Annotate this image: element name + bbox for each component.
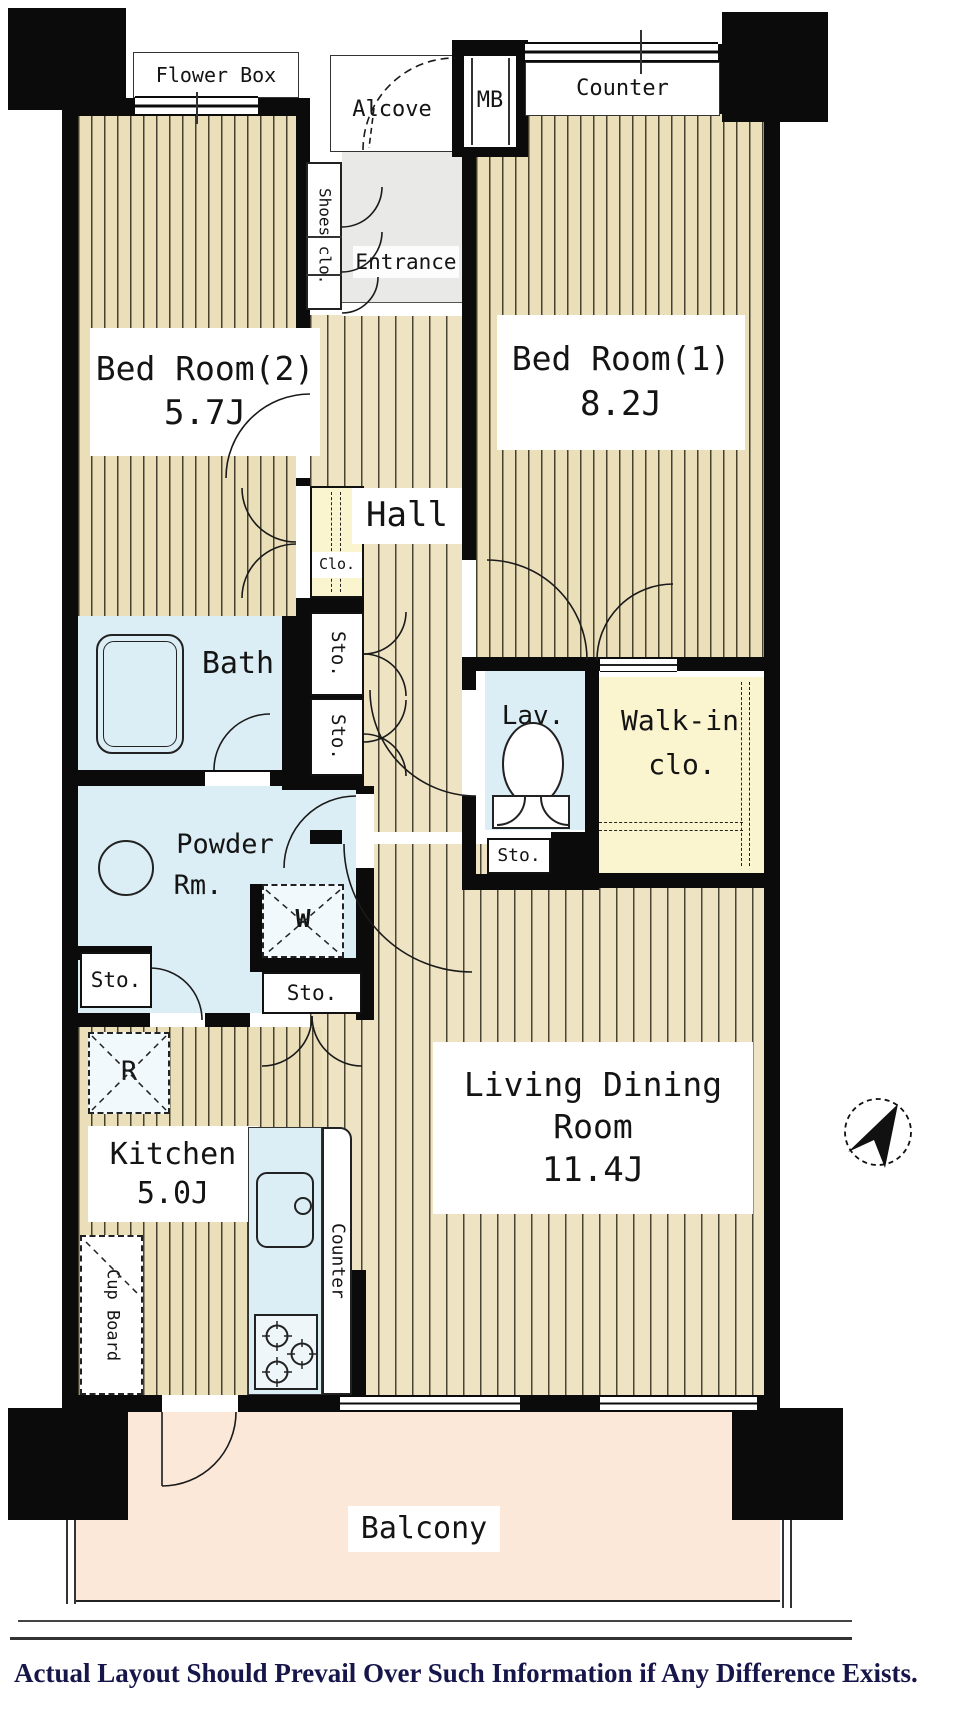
bath-door-opening: [205, 772, 270, 786]
lavatory-door-opening: [462, 690, 476, 796]
kitchen-label: Kitchen 5.0J: [88, 1126, 258, 1222]
counter-top-box: Counter: [525, 62, 720, 116]
wall-walkin-bottom: [599, 873, 780, 888]
railing-line-1: [18, 1620, 852, 1622]
wall-right-outer: [764, 122, 780, 1408]
ldk-window-1: [340, 1395, 520, 1412]
walkin-label-2: clo.: [636, 744, 728, 786]
bath-label: Bath: [196, 644, 280, 684]
balcony-edge-r2: [790, 1520, 792, 1608]
ldk-window-2: [600, 1395, 757, 1412]
entrance-step: [342, 302, 462, 316]
corner-block-top-right: [722, 12, 828, 122]
balcony-door-opening: [162, 1395, 238, 1412]
shoes-tick-2: [306, 274, 342, 276]
sto-lavatory: Sto.: [487, 838, 551, 874]
compass-north-icon: [838, 1088, 926, 1176]
floor-plan: Flower Box Alcove MB Counter Shoes clo. …: [0, 0, 977, 1709]
flower-box: Flower Box: [133, 52, 299, 98]
wall-washer-left: [250, 884, 262, 960]
counter-window: [525, 42, 718, 62]
kitchen-counter-strip: Counter: [322, 1127, 352, 1395]
bathtub: [96, 634, 184, 754]
balcony-edge-l2: [74, 1520, 76, 1604]
sto-powder: Sto.: [80, 952, 152, 1008]
living-dining-label: Living Dining Room 11.4J: [433, 1042, 753, 1214]
powder-door-opening: [356, 794, 374, 868]
powder-label-1: Powder: [158, 824, 292, 866]
disclaimer-text: Actual Layout Should Prevail Over Such I…: [14, 1658, 970, 1698]
cup-board: Cup Board: [80, 1235, 143, 1395]
alcove-label: Alcove: [344, 94, 440, 126]
railing-line-2: [10, 1637, 852, 1640]
bedroom2-label: Bed Room(2) 5.7J: [90, 328, 320, 456]
walkin-dash-v2: [749, 682, 750, 866]
corner-block-bottom-right: [732, 1408, 843, 1520]
hall-label: Hall: [352, 488, 462, 544]
entrance-label: Entrance: [353, 246, 459, 278]
flower-box-tick: [196, 92, 198, 124]
walkin-dash-v1: [741, 682, 742, 866]
washer-label: W: [284, 902, 322, 936]
wall-ldk-top: [310, 830, 342, 844]
corner-block-top-left: [8, 8, 126, 110]
bedroom1-label: Bed Room(1) 8.2J: [497, 315, 745, 450]
bedroom1-slider-opening: [600, 658, 677, 672]
powder-sink: [98, 840, 154, 896]
kitchen-unit: [248, 1127, 322, 1395]
balcony-label: Balcony: [348, 1506, 500, 1552]
balcony-edge-r1: [782, 1520, 784, 1608]
mb-label: MB: [470, 86, 510, 116]
counter-tick: [640, 30, 642, 74]
wall-washer-bottom: [250, 958, 362, 972]
walkin-label-1: Walk-in: [604, 700, 756, 742]
refrigerator-label: R: [112, 1054, 146, 1090]
wall-closet-divider-top: [296, 598, 364, 612]
lavatory-floor: [485, 671, 585, 830]
sto-hall-upper: Sto.: [310, 612, 364, 696]
wall-kitchen-partition: [352, 1270, 366, 1395]
wall-bath-right: [282, 616, 310, 790]
bedroom2-closet-opening: [296, 486, 310, 598]
wall-left-outer: [62, 98, 78, 1408]
walkin-dash-h1: [599, 822, 743, 823]
sto-hall-lower: Sto.: [310, 698, 364, 776]
powder-label-2: Rm.: [160, 866, 236, 906]
entrance-floor: [342, 150, 462, 302]
shoes-tick-1: [306, 236, 342, 238]
lavatory-label: Lav.: [497, 700, 569, 734]
wall-top-a: [62, 98, 135, 116]
corner-block-bottom-left: [8, 1408, 128, 1520]
balcony-edge-l1: [66, 1520, 68, 1604]
bedroom1-door-opening: [462, 560, 476, 657]
wall-lavatory-chunk: [551, 832, 599, 880]
wall-bath-bottom: [62, 770, 310, 786]
kitchen-door-opening: [150, 1013, 205, 1027]
closet-label: Clo.: [312, 552, 362, 578]
walkin-dash-h2: [599, 830, 743, 831]
wall-lavatory-bottom: [462, 874, 599, 890]
sto-kitchen: Sto.: [262, 972, 362, 1014]
flower-box-label: Flower Box: [156, 65, 276, 86]
